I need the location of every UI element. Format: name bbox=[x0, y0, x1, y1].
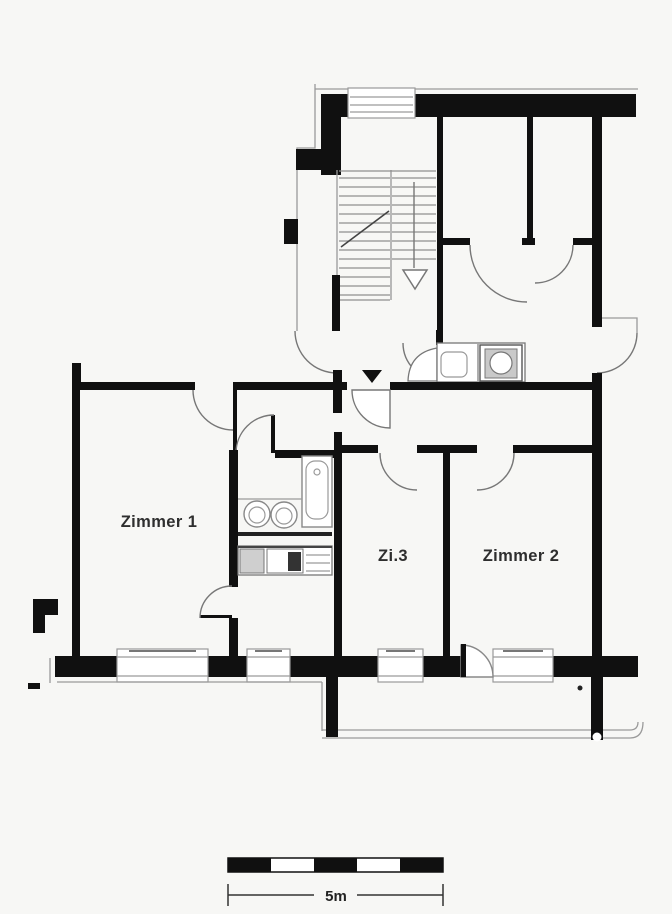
drain-dot bbox=[578, 686, 583, 691]
door-swing bbox=[597, 333, 637, 373]
window-zimmer2 bbox=[493, 649, 553, 682]
room-label-zimmer2: Zimmer 2 bbox=[483, 547, 560, 565]
washing-machine-icon bbox=[240, 549, 264, 573]
scale-label: 5m bbox=[325, 888, 347, 905]
entrance-arrow-icon bbox=[362, 370, 382, 383]
stairwell-window bbox=[348, 88, 415, 118]
exterior-pier bbox=[284, 219, 298, 244]
door-swing bbox=[535, 245, 573, 283]
balcony-door bbox=[461, 644, 493, 677]
stair-down-arrow-icon bbox=[403, 270, 427, 289]
upper-rooms bbox=[443, 117, 602, 327]
door-swing bbox=[295, 331, 337, 373]
window-zimmer1 bbox=[117, 649, 208, 682]
door-swing bbox=[477, 453, 514, 490]
room-label-zimmer1: Zimmer 1 bbox=[121, 513, 198, 531]
floor-plan-drawing: Zimmer 1 Zi.3 Zimmer 2 5m bbox=[0, 0, 672, 914]
door-swing bbox=[470, 245, 527, 302]
door-swing bbox=[380, 453, 417, 490]
appliance-block bbox=[238, 546, 332, 575]
door-swing bbox=[193, 390, 233, 430]
kitchen-unit bbox=[408, 343, 525, 382]
balcony-post bbox=[593, 733, 602, 742]
balcony bbox=[57, 677, 643, 742]
floor-plan-page: Zimmer 1 Zi.3 Zimmer 2 5m bbox=[0, 0, 672, 914]
bathroom-column bbox=[193, 390, 342, 677]
bathtub-icon bbox=[302, 456, 332, 527]
staircase bbox=[337, 170, 436, 300]
stove-burner-icon bbox=[490, 352, 512, 374]
room-label-zi3: Zi.3 bbox=[378, 547, 408, 565]
window-zi3 bbox=[378, 649, 423, 682]
entrance-door-swing bbox=[352, 390, 390, 428]
scale-bar: 5m bbox=[228, 858, 443, 906]
door-swing bbox=[200, 586, 232, 618]
stairwell bbox=[296, 88, 636, 331]
window-bath bbox=[247, 649, 290, 682]
corridor bbox=[295, 318, 637, 383]
door-swing bbox=[236, 415, 274, 453]
